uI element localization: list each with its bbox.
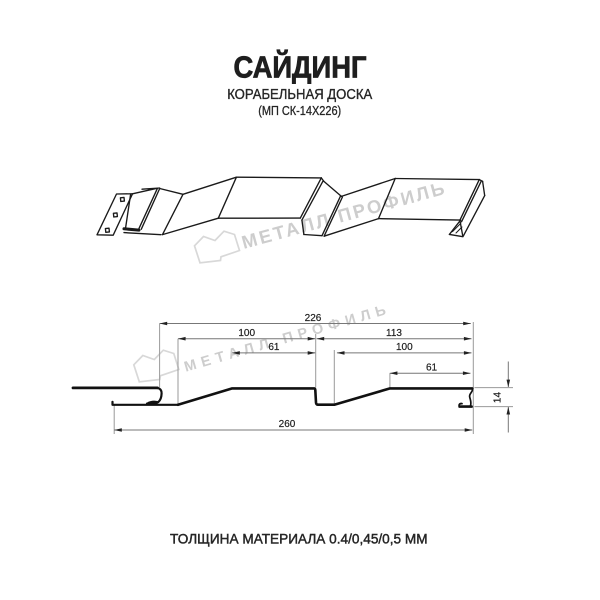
svg-text:100: 100 — [238, 328, 255, 339]
svg-text:100: 100 — [396, 342, 413, 353]
svg-text:226: 226 — [305, 313, 322, 324]
svg-text:61: 61 — [426, 362, 438, 373]
svg-text:260: 260 — [279, 419, 296, 430]
svg-text:(МП СК-14Х226): (МП СК-14Х226) — [258, 103, 341, 118]
svg-text:САЙДИНГ: САЙДИНГ — [234, 49, 367, 85]
svg-text:113: 113 — [386, 328, 402, 339]
svg-text:ТОЛЩИНА МАТЕРИАЛА 0.4/0,45/0,5: ТОЛЩИНА МАТЕРИАЛА 0.4/0,45/0,5 ММ — [170, 532, 428, 547]
svg-text:КОРАБЕЛЬНАЯ ДОСКА: КОРАБЕЛЬНАЯ ДОСКА — [227, 87, 372, 103]
svg-text:61: 61 — [268, 342, 280, 353]
svg-text:14: 14 — [493, 392, 504, 404]
